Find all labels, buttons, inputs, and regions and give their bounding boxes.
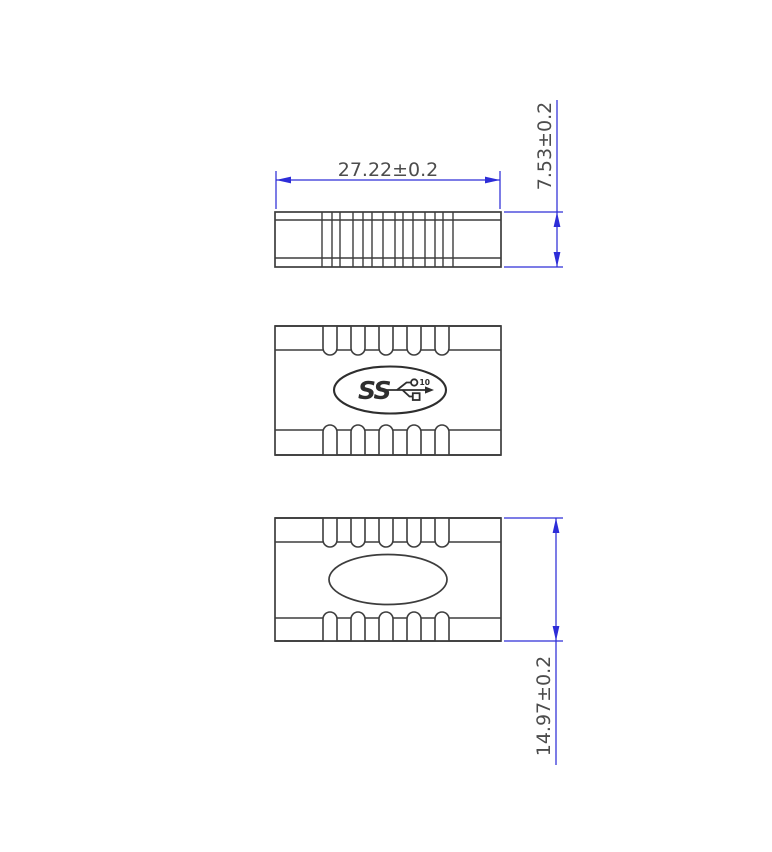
side-view: [275, 212, 501, 267]
extension-lines: [504, 518, 563, 641]
arrowhead-down-icon: [554, 252, 561, 267]
top-view: SS 10: [275, 326, 501, 455]
overall-width-dimension: 27.22±0.2: [276, 159, 500, 209]
dimension-label: 7.53±0.2: [534, 102, 556, 190]
dimension-label: 27.22±0.2: [338, 159, 439, 181]
arrowhead-right-icon: [485, 177, 500, 184]
side-height-dimension: 7.53±0.2: [504, 100, 563, 267]
arrowhead-down-icon: [553, 626, 560, 641]
front-view: [275, 518, 501, 641]
arrowhead-up-icon: [553, 518, 560, 533]
technical-drawing-canvas: 27.22±0.2 7.53±0.2 SS: [0, 0, 772, 852]
dimension-label: 14.97±0.2: [533, 656, 555, 757]
speed-text: 10: [420, 378, 430, 387]
ss-text: SS: [358, 376, 391, 405]
body-height-dimension: 14.97±0.2: [504, 518, 563, 765]
extension-lines: [504, 212, 563, 267]
arrowhead-left-icon: [276, 177, 291, 184]
arrowhead-up-icon: [554, 212, 561, 227]
